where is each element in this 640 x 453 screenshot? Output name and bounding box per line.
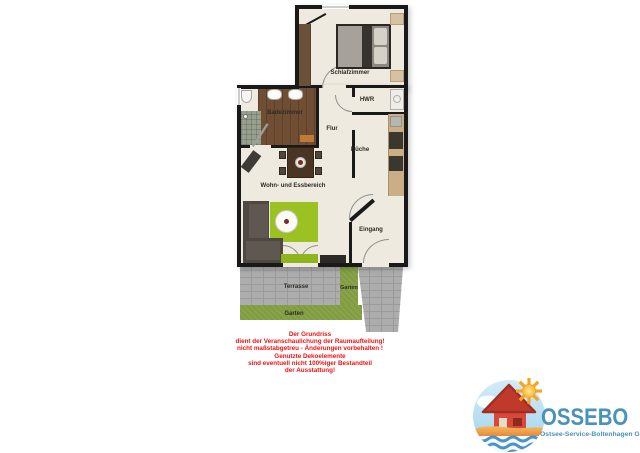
logo-wordmark: OSSEBO — [541, 404, 628, 432]
nightstand — [390, 13, 404, 25]
sun-icon — [516, 378, 542, 404]
kitchen-appliance — [389, 132, 403, 149]
chair — [279, 167, 286, 175]
door-gap — [362, 263, 389, 267]
coffee-table — [275, 210, 298, 233]
wall — [352, 130, 355, 178]
door-gap — [352, 97, 355, 112]
entry-path-area — [358, 267, 403, 332]
bath-mat — [300, 135, 314, 142]
wall — [237, 85, 241, 267]
outdoor-label-garten-unten: Garten — [272, 311, 316, 318]
wardrobe — [299, 24, 311, 86]
logo-tagline: Ostsee-Service-Boltenhagen GmbH — [540, 431, 640, 438]
floorplan-canvas: Schlafzimmer HWR Badezimmer Flur Küche W… — [0, 0, 640, 453]
sink — [267, 89, 282, 100]
sofa-seat — [246, 241, 280, 260]
chair — [315, 167, 322, 175]
wall — [237, 85, 299, 89]
disclaimer-line: der Ausstattung! — [170, 367, 450, 374]
washing-machine-door — [393, 95, 401, 103]
sink — [288, 89, 303, 100]
tv-board — [320, 255, 346, 263]
pillow — [374, 28, 387, 45]
door-mat — [281, 254, 318, 263]
wall — [349, 222, 352, 263]
outdoor-label-terrasse: Terrasse — [268, 284, 324, 291]
wall — [316, 88, 319, 145]
disclaimer-line: nicht maßstabgetreu - Änderungen vorbeha… — [170, 345, 450, 352]
disclaimer-text: Der Grundriss dient der Veranschaulichun… — [170, 331, 450, 374]
bed-duvet — [362, 26, 372, 67]
nightstand — [390, 70, 404, 82]
room-label-schlafzimmer: Schlafzimmer — [324, 70, 376, 77]
room-label-hwr: HWR — [356, 97, 378, 104]
door-gap — [283, 263, 318, 267]
toilet — [241, 90, 252, 103]
room-label-kueche: Küche — [348, 147, 372, 154]
room-label-badezimmer: Badezimmer — [263, 110, 307, 117]
pillow — [374, 47, 387, 64]
kitchen-sink — [390, 116, 402, 127]
wall — [352, 88, 355, 97]
outdoor-label-garten-seite: Garten — [340, 285, 358, 292]
room-label-wohnbereich: Wohn- und Essbereich — [253, 183, 333, 190]
chair — [279, 151, 286, 159]
wall — [295, 5, 408, 9]
disclaimer-line: sind eventuell nicht 100%iger Bestandtei… — [170, 360, 450, 367]
chair — [315, 151, 322, 159]
kitchen-appliance — [389, 156, 403, 171]
table-centerpiece — [295, 157, 306, 168]
disclaimer-line: Genutzte Dekoelemente — [170, 353, 450, 360]
bed-mattress — [338, 26, 362, 67]
room-label-flur: Flur — [322, 126, 342, 133]
window — [322, 5, 349, 9]
disclaimer-line: Der Grundriss — [170, 331, 450, 338]
room-label-eingang: Eingang — [356, 227, 386, 234]
shower-head — [243, 114, 248, 119]
ossebo-logo-icon — [472, 376, 550, 453]
wall — [404, 5, 408, 267]
